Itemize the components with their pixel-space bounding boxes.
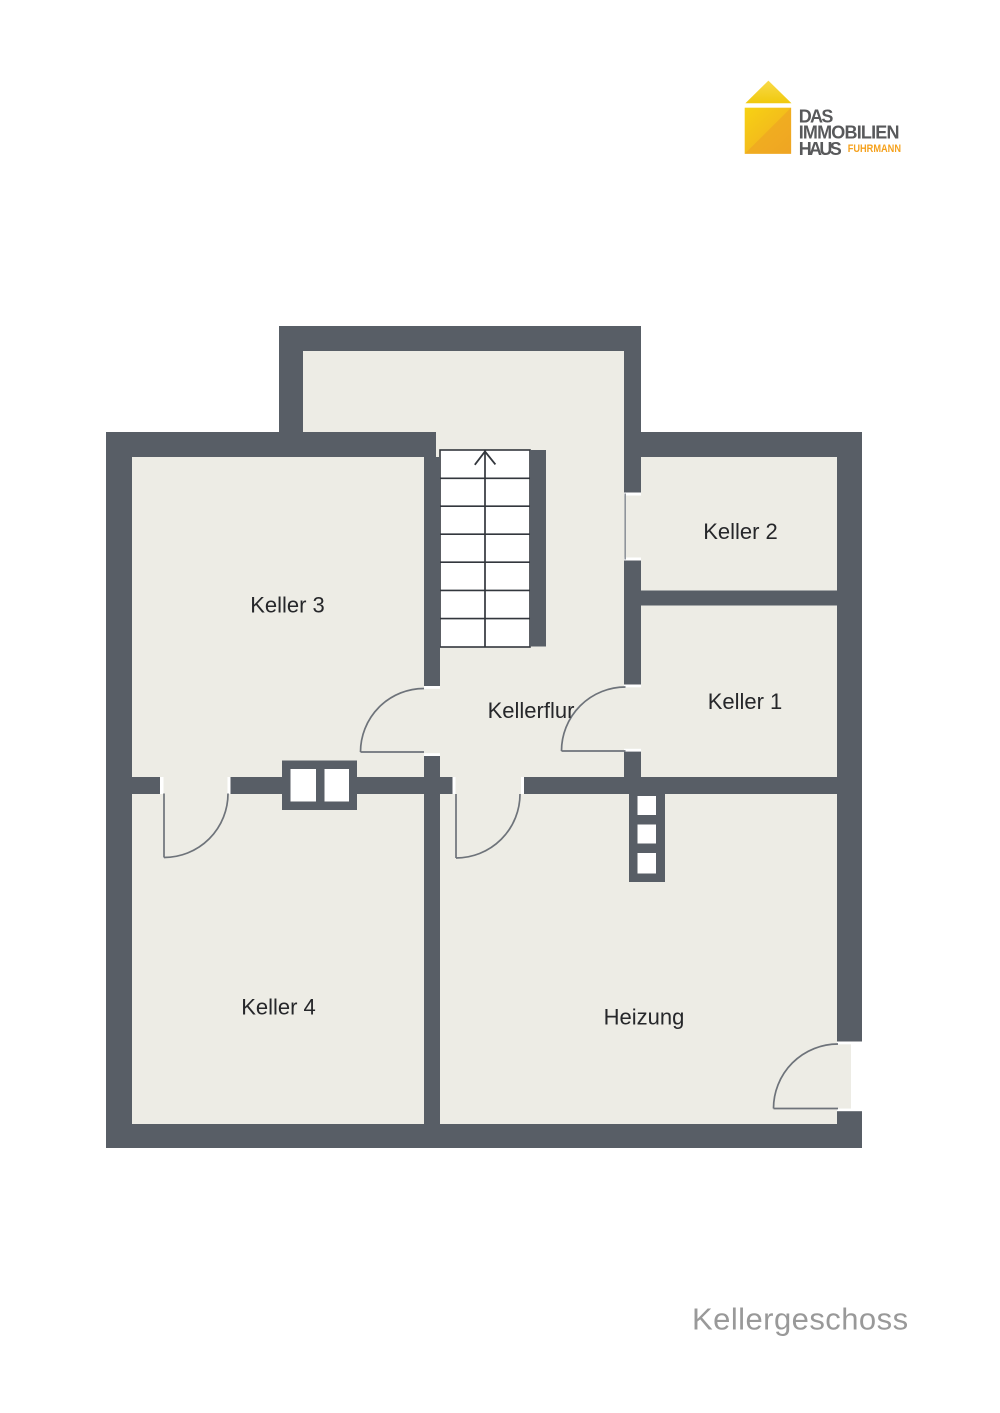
svg-text:Kellerflur: Kellerflur: [488, 698, 575, 723]
svg-text:Heizung: Heizung: [604, 1005, 685, 1030]
svg-text:Kellergeschoss: Kellergeschoss: [692, 1302, 909, 1337]
svg-text:HAUS: HAUS: [799, 139, 842, 159]
svg-text:Keller 1: Keller 1: [708, 689, 783, 714]
svg-text:FUHRMANN: FUHRMANN: [848, 143, 901, 155]
svg-text:Keller 3: Keller 3: [250, 593, 325, 618]
svg-text:Keller 2: Keller 2: [703, 519, 778, 544]
svg-text:Keller 4: Keller 4: [241, 995, 316, 1020]
